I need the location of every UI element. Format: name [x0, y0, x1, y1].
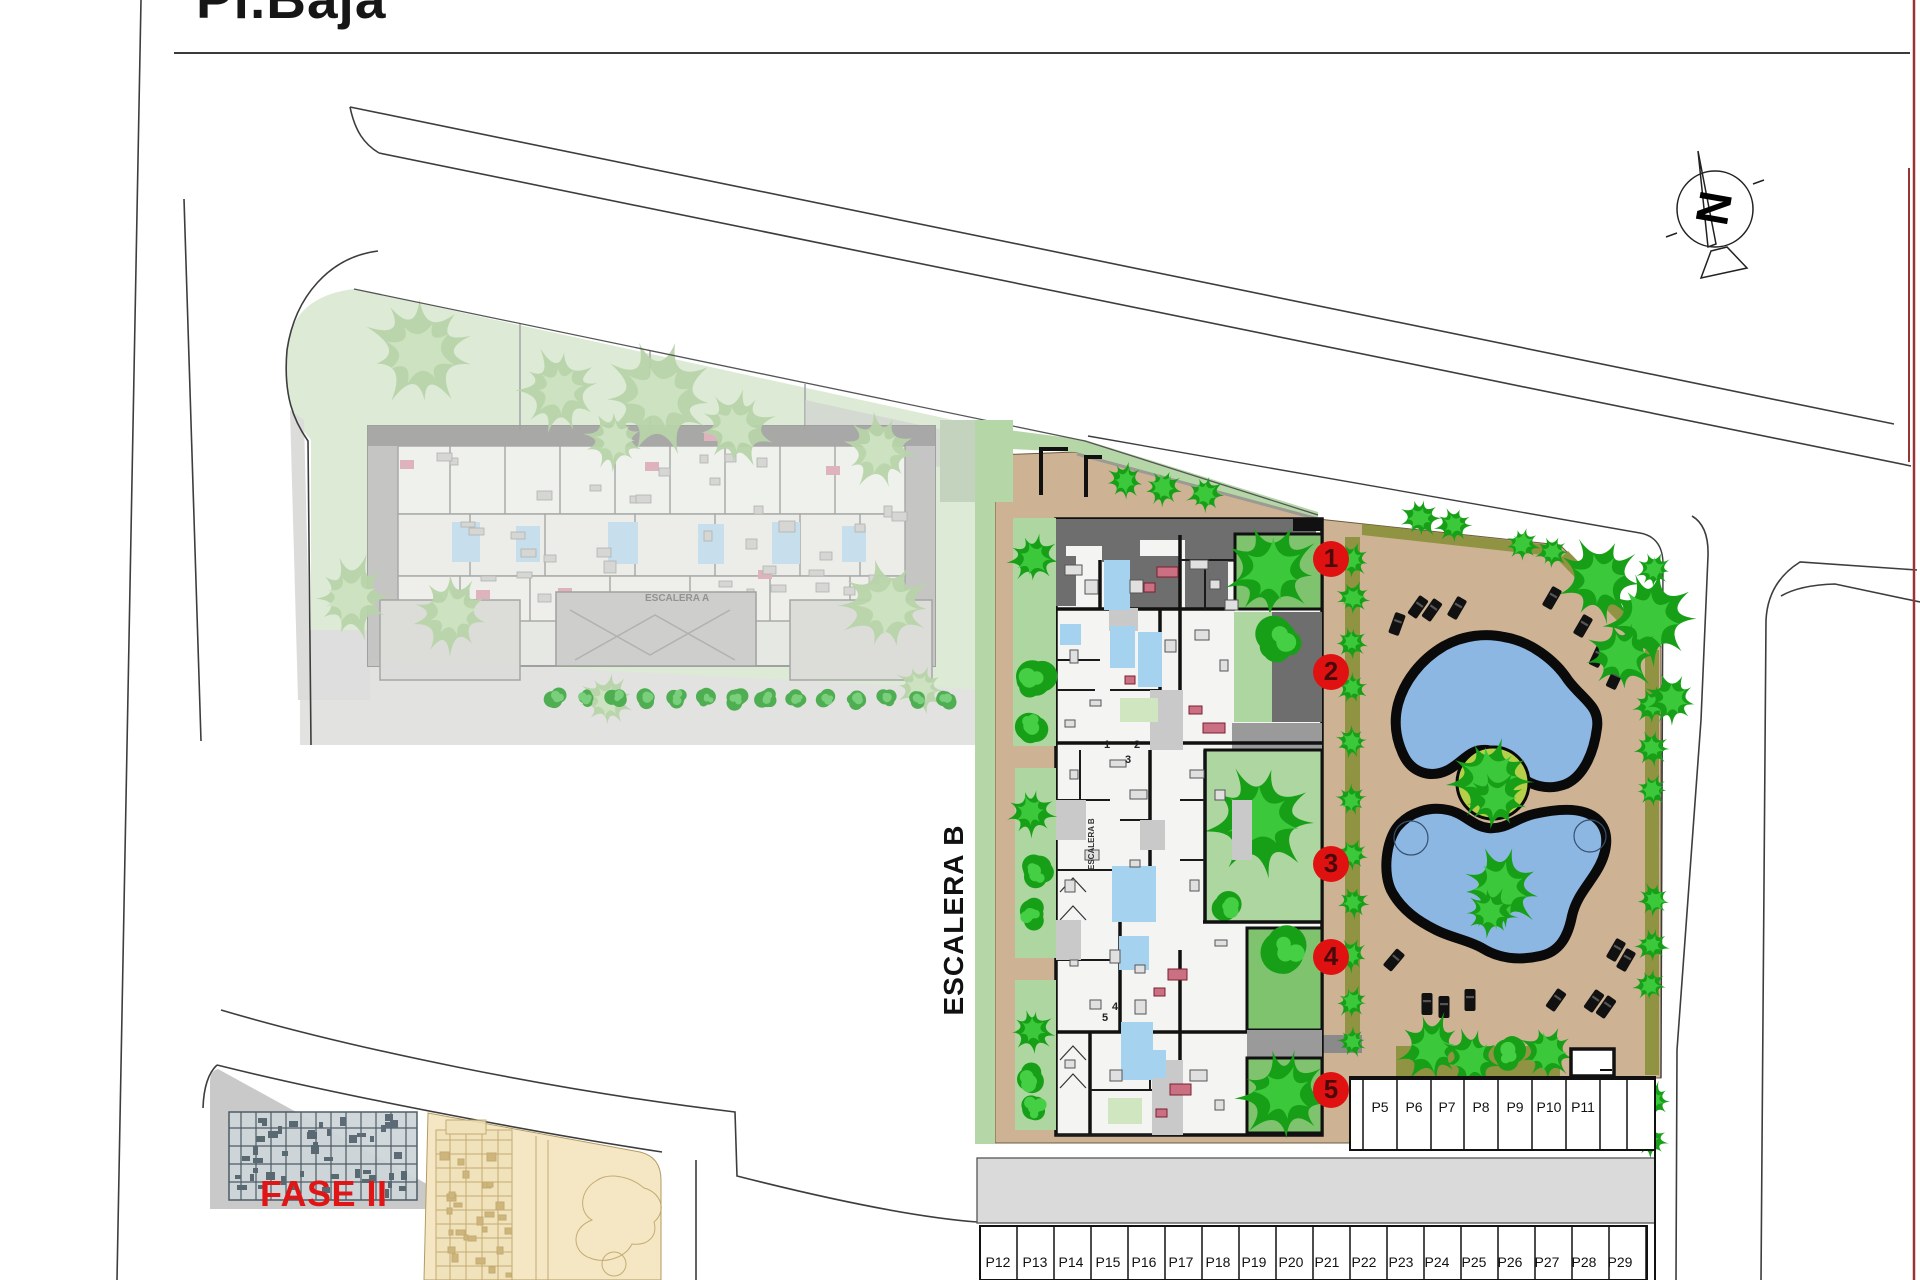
svg-text:P18: P18 — [1206, 1254, 1231, 1270]
svg-text:P27: P27 — [1535, 1254, 1560, 1270]
svg-text:P16: P16 — [1132, 1254, 1157, 1270]
svg-text:P22: P22 — [1352, 1254, 1377, 1270]
svg-text:P11: P11 — [1571, 1099, 1595, 1115]
svg-text:P24: P24 — [1425, 1254, 1450, 1270]
svg-text:4: 4 — [1112, 1001, 1119, 1013]
svg-text:P20: P20 — [1279, 1254, 1304, 1270]
svg-text:2: 2 — [1324, 656, 1338, 686]
svg-text:ESCALERA A: ESCALERA A — [645, 593, 709, 604]
svg-text:P6: P6 — [1405, 1099, 1422, 1115]
svg-text:P14: P14 — [1059, 1254, 1084, 1270]
svg-text:3: 3 — [1324, 848, 1338, 878]
svg-text:P17: P17 — [1169, 1254, 1194, 1270]
svg-text:ESCALERA B: ESCALERA B — [938, 825, 969, 1016]
svg-text:P15: P15 — [1096, 1254, 1121, 1270]
svg-text:1: 1 — [1104, 739, 1110, 751]
svg-text:P9: P9 — [1506, 1099, 1523, 1115]
svg-text:P21: P21 — [1315, 1254, 1340, 1270]
svg-text:ESCALERA B: ESCALERA B — [1087, 818, 1096, 870]
svg-text:P7: P7 — [1438, 1099, 1455, 1115]
svg-text:P19: P19 — [1242, 1254, 1267, 1270]
svg-text:P29: P29 — [1608, 1254, 1633, 1270]
svg-text:P28: P28 — [1572, 1254, 1597, 1270]
svg-text:3: 3 — [1125, 754, 1131, 766]
svg-text:P26: P26 — [1498, 1254, 1523, 1270]
svg-text:5: 5 — [1102, 1012, 1108, 1024]
svg-text:P10: P10 — [1537, 1099, 1562, 1115]
svg-text:P25: P25 — [1462, 1254, 1487, 1270]
svg-text:1: 1 — [1324, 543, 1338, 573]
svg-text:P8: P8 — [1472, 1099, 1489, 1115]
svg-text:P23: P23 — [1389, 1254, 1414, 1270]
svg-text:4: 4 — [1324, 941, 1339, 971]
svg-text:P13: P13 — [1023, 1254, 1048, 1270]
svg-text:2: 2 — [1134, 739, 1140, 751]
svg-text:P12: P12 — [986, 1254, 1011, 1270]
svg-text:FASE II: FASE II — [260, 1173, 388, 1214]
svg-text:Pl.Baja: Pl.Baja — [196, 0, 386, 30]
svg-text:P5: P5 — [1371, 1099, 1388, 1115]
svg-text:5: 5 — [1324, 1074, 1338, 1104]
